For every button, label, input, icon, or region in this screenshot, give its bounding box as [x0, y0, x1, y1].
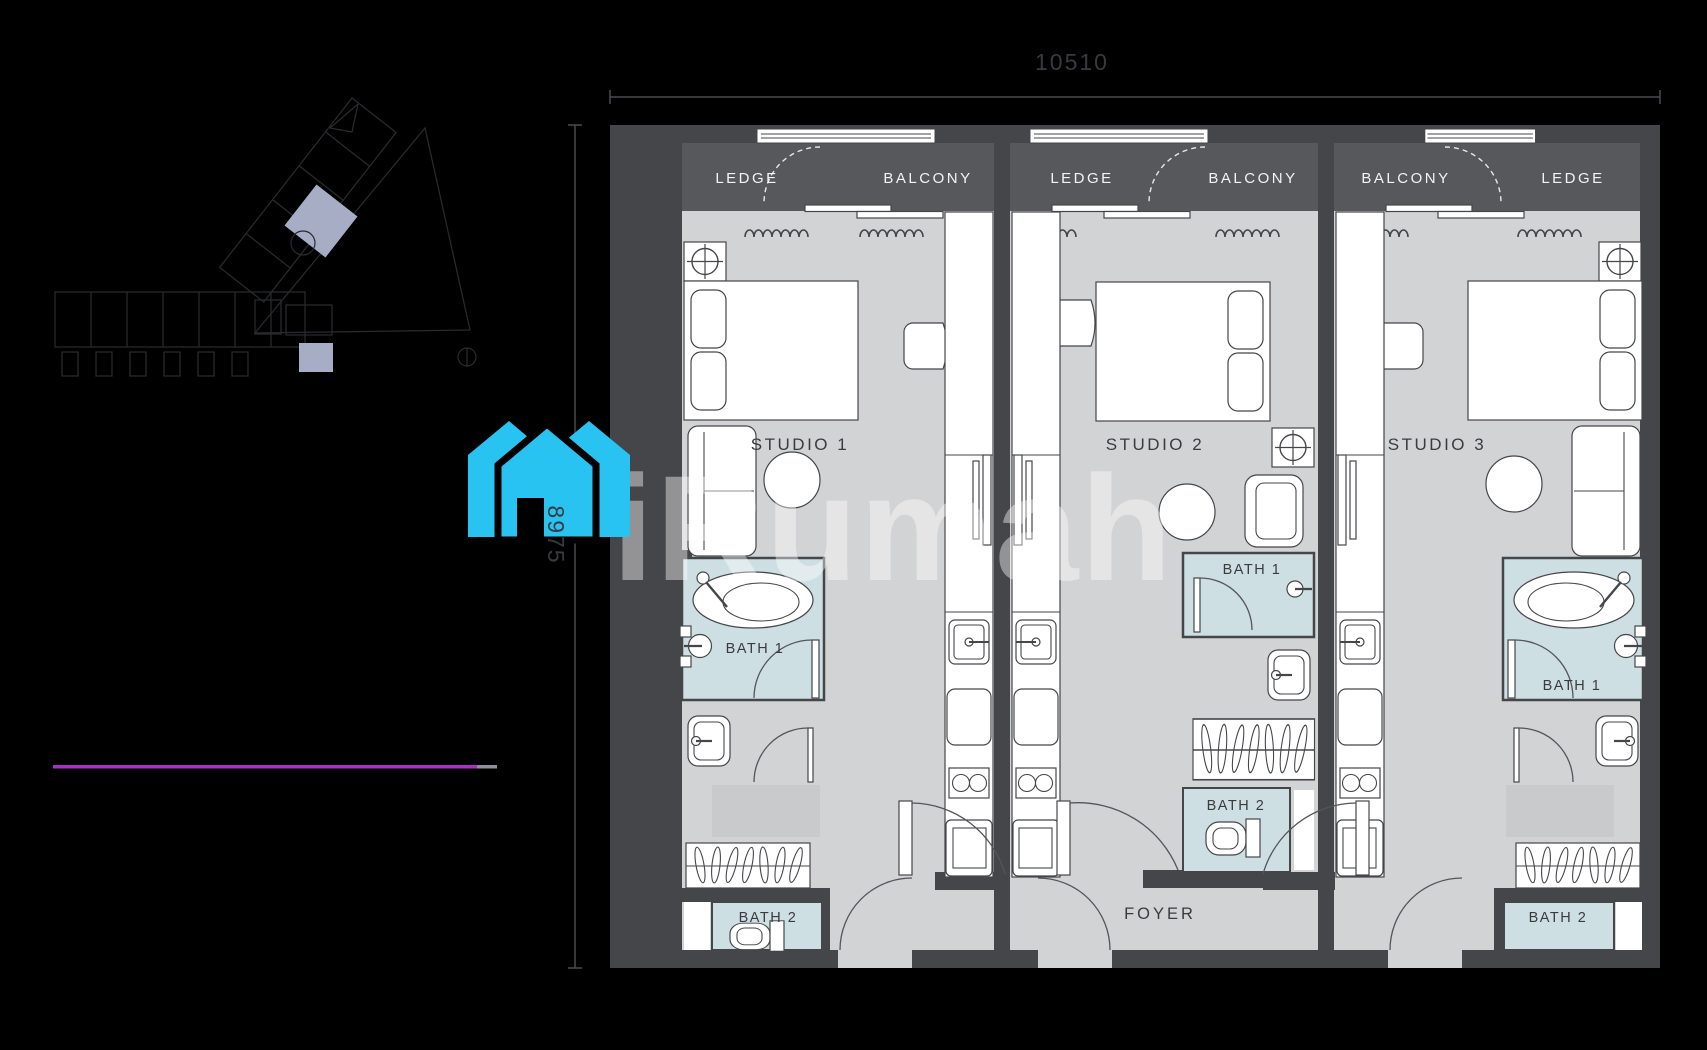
- cabinet: [712, 785, 820, 837]
- aircond-unit: [684, 242, 726, 281]
- sofa: [1572, 426, 1640, 556]
- bath1-label-unit2: BATH 1: [1223, 562, 1282, 578]
- door-leaf: [1508, 640, 1515, 698]
- bed: [684, 281, 858, 420]
- round-table: [1486, 456, 1542, 512]
- bed: [1096, 282, 1270, 421]
- vanity-sink: [1596, 716, 1638, 766]
- band-label-ledge-3: LEDGE: [1541, 170, 1604, 187]
- band-label-balcony-2: BALCONY: [1208, 170, 1297, 187]
- divider-line: [53, 765, 497, 769]
- bath2-label-unit2: BATH 2: [1207, 798, 1266, 814]
- door-opening: [684, 902, 710, 950]
- band-label-ledge-1: LEDGE: [715, 170, 778, 187]
- window: [1030, 129, 1208, 143]
- bath2-label-unit3: BATH 2: [1529, 910, 1588, 926]
- bed: [1468, 281, 1642, 420]
- dimension-top: 10510: [610, 49, 1660, 104]
- door-leaf: [1194, 578, 1200, 632]
- site-highlight-square-2: [299, 343, 333, 372]
- band-label-balcony-3: BALCONY: [1361, 170, 1450, 187]
- desk-chair: [1380, 323, 1423, 369]
- door-opening: [1294, 790, 1314, 870]
- window: [757, 129, 935, 143]
- wardrobe: [1193, 719, 1315, 780]
- site-plan-sketch: [55, 98, 476, 376]
- foyer-label: FOYER: [1124, 905, 1196, 923]
- bath1-label-unit1: BATH 1: [726, 641, 785, 657]
- dimension-side: [568, 125, 582, 968]
- cabinet: [1506, 785, 1614, 837]
- entry-opening: [1038, 950, 1112, 968]
- watermark: iRumah 8975: [468, 421, 1174, 612]
- dimension-top-label: 10510: [1035, 49, 1109, 75]
- aircond-unit: [1599, 242, 1641, 281]
- bath1-label-unit3: BATH 1: [1543, 678, 1602, 694]
- vanity-sink: [688, 716, 730, 766]
- entry-opening: [1388, 950, 1462, 968]
- window: [1425, 129, 1535, 143]
- door-leaf: [812, 640, 819, 698]
- room-label-studio-3: STUDIO 3: [1388, 435, 1486, 454]
- wardrobe: [686, 843, 810, 888]
- band-label-balcony-1: BALCONY: [883, 170, 972, 187]
- wardrobe: [1516, 843, 1640, 888]
- door-leaf: [899, 801, 912, 875]
- floorplan-canvas: 10510: [0, 0, 1707, 1050]
- bath2-label-unit1: BATH 2: [739, 910, 798, 926]
- balcony-band: [682, 143, 1642, 211]
- door-leaf: [808, 728, 813, 782]
- door-opening: [1616, 902, 1642, 950]
- door-leaf: [1514, 728, 1519, 782]
- floorplan-page: 10510: [0, 0, 1707, 1050]
- band-label-ledge-2: LEDGE: [1050, 170, 1113, 187]
- bathtub: [1514, 572, 1634, 628]
- vanity-sink: [1268, 650, 1310, 700]
- entry-opening: [838, 950, 912, 968]
- door-leaf: [1356, 801, 1369, 875]
- desk-chair: [904, 323, 947, 369]
- watermark-text: iRumah: [612, 444, 1174, 612]
- kitchen-counter: [1336, 212, 1384, 877]
- dimension-side-label: 8975: [543, 505, 569, 564]
- toilet: [1206, 819, 1260, 857]
- aircond-unit: [1272, 428, 1314, 467]
- door-leaf: [1057, 801, 1070, 875]
